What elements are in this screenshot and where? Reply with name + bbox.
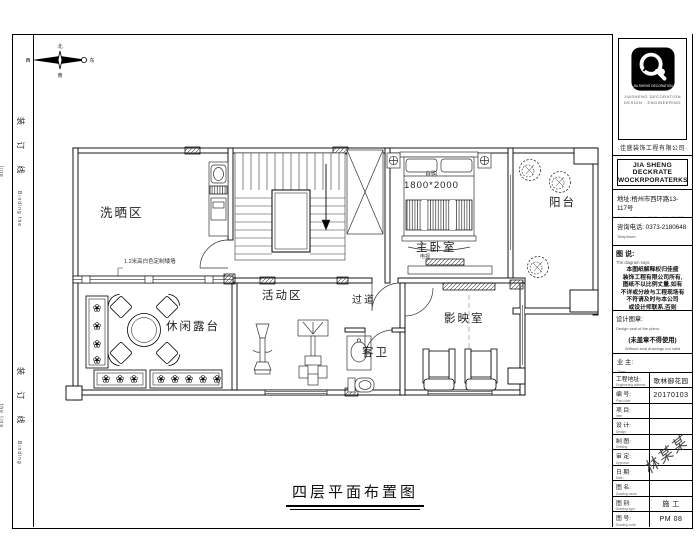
bathroom-fixtures — [347, 336, 374, 392]
logo-emblem-label: JIA SHENG DECORATION — [633, 84, 673, 88]
notes-label-en: The diagram says: — [616, 260, 689, 265]
table-row-item: 项 目:Item: — [613, 404, 692, 420]
cinema-room — [423, 283, 497, 390]
room-label-cinema: 影映室 — [444, 314, 485, 326]
owner-cell: 业 主: Own: — [613, 354, 692, 373]
room-label-guest-bath: 客卫 — [362, 348, 389, 360]
drawing-title-text: 四层平面布置图 — [292, 481, 418, 502]
logo-subline-2: DESIGN · ENGINEERING — [619, 100, 686, 106]
owner-label-en: Own: — [617, 369, 689, 373]
seal-label: 设计图章: — [616, 314, 689, 323]
seal-note: (未盖章不得使用) — [616, 335, 689, 344]
room-label-terrace: 休闲露台 — [166, 322, 220, 334]
phone-en: Telephone: — [617, 234, 688, 239]
tv-note-annotation: 电视 — [420, 255, 430, 260]
plant — [528, 257, 549, 278]
staircase — [235, 153, 345, 260]
plant — [520, 160, 541, 181]
north-compass-icon: 北 南 西 东 — [26, 40, 94, 80]
room-label-corridor: 过道 — [352, 296, 376, 306]
plant — [550, 172, 571, 193]
owner-label: 业 主: — [617, 357, 689, 366]
disclaimer-line: 不符请及时与本公司 — [616, 297, 689, 305]
phone-cn: 咨询电话: 0373-2180648 — [617, 222, 688, 231]
drawing-code-value: PM 08 — [650, 512, 692, 527]
table-row-project-address: 工程地址:Engineering address: 歌林御花园 — [613, 373, 692, 389]
shaft-void — [347, 150, 383, 234]
telephone-cell: 咨询电话: 0373-2180648 Telephone: — [613, 218, 692, 246]
title-underline-thick — [286, 505, 424, 507]
company-name-en-line2: WOCKRPORATERKS — [618, 177, 687, 184]
bed-size-annotation: 1800*2000 — [404, 181, 459, 191]
company-cell: JIA SHENG DECKRATE WOCKRPORATERKS — [613, 156, 692, 189]
address-cell: 地址:梧州市西环路13-117号 Address:Wuzhou W. Road … — [613, 190, 692, 218]
company-name-cn: ·佳盛装饰工程有限公司· — [613, 143, 692, 152]
notes-label: 图 说: — [616, 249, 689, 259]
company-logo-icon: JIA SHENG DECORATION — [630, 46, 676, 92]
room-label-master-bedroom: 主卧室 — [416, 243, 457, 255]
low-wall-annotation: 1.2米高白色定制矮墙 — [124, 260, 176, 266]
table-row-drawing-code: 图 号:Drawing code: PM 08 — [613, 512, 692, 527]
floor-plan-drawing — [60, 140, 610, 410]
drawing-type-value: 施 工 — [650, 497, 692, 512]
bed-note-annotation: 自购 — [425, 172, 437, 178]
laundry-counter — [209, 162, 228, 236]
title-underline-thin — [290, 509, 420, 510]
seal-note-en: Without seal drawings not valid — [616, 346, 689, 351]
disclaimer-line: 本图纸解释权归佳盛 — [616, 267, 689, 275]
binding-line-cn: 装 订 线 — [16, 117, 25, 180]
notes-cell: 图 说: The diagram says: 本图纸解释权归佳盛 装饰工程有限公… — [613, 246, 692, 311]
logo-cell: JIA SHENG DECORATION JIASHENG DECORATION… — [613, 34, 692, 156]
compass-west-label: 西 — [26, 58, 31, 64]
seal-label-en: Design seal of the plans: — [616, 326, 689, 331]
table-row-drawing-name: 图 名:Drawing name: — [613, 481, 692, 497]
drawing-title: 四层平面布置图 — [280, 481, 430, 510]
annotation-leader — [118, 268, 123, 276]
binding-line-text-top: 装 订 线 Binding the line — [15, 112, 31, 232]
logo-box: JIA SHENG DECORATION JIASHENG DECORATION… — [618, 38, 687, 140]
design-seal-cell: 设计图章: Design seal of the plans: (未盖章不得使用… — [613, 311, 692, 354]
address-cn: 地址:梧州市西环路13-117号 — [617, 194, 688, 212]
room-label-balcony: 阳台 — [549, 198, 576, 210]
binding-line-text-bottom: 装 订 线 Binding the line — [15, 366, 31, 466]
compass-north-label: 北 — [57, 43, 62, 50]
plan-code-value: 20170103 — [650, 388, 692, 403]
tv-cabinet — [408, 259, 492, 274]
room-label-laundry: 洗晒区 — [100, 207, 144, 220]
room-label-activity: 活动区 — [262, 291, 303, 303]
project-address-value: 歌林御花园 — [650, 373, 692, 388]
drawing-sheet: 装 订 线 Binding the line 装 订 线 Binding the… — [0, 0, 700, 560]
logo-subline-1: JIASHENG DECORATION — [619, 94, 686, 100]
bed — [387, 152, 491, 251]
table-row-drawing-type: 图 别:Drawing type: 施 工 — [613, 497, 692, 513]
table-row-plan-code: 编 号:Plan code: 20170103 — [613, 388, 692, 404]
compass-east-label: 东 — [89, 57, 94, 64]
company-name-en-line1: JIA SHENG DECKRATE — [618, 162, 687, 176]
disclaimer-line: 图纸不以比例丈量,如有 — [616, 282, 689, 290]
compass-south-label: 南 — [57, 72, 62, 79]
binding-margin-line — [33, 34, 34, 527]
fitness-equipment — [253, 320, 328, 385]
